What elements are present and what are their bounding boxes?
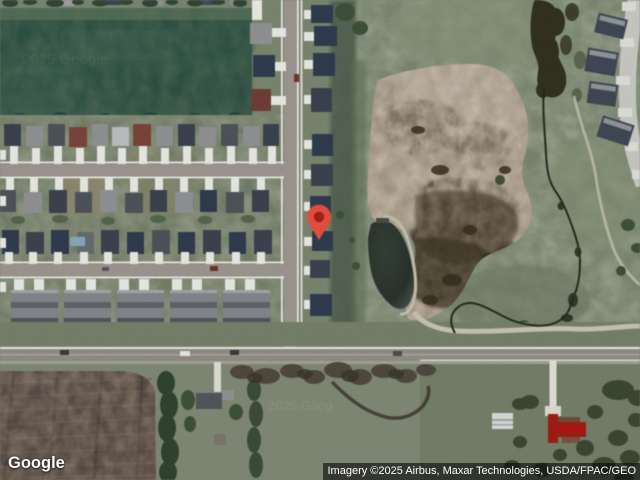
svg-text:© 2025: © 2025 — [395, 136, 437, 151]
svg-text:2025 Google: 2025 Google — [22, 51, 108, 68]
svg-text:2025 Goog: 2025 Goog — [268, 398, 332, 413]
